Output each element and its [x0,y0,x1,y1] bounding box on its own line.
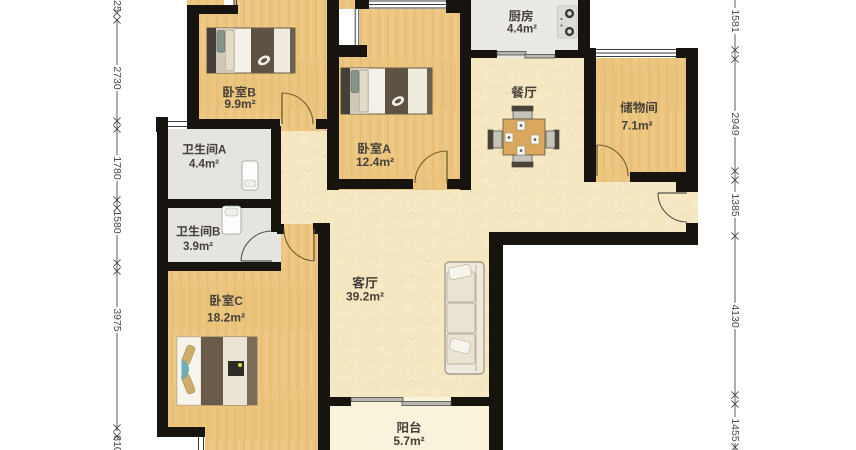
svg-text:4.4m²: 4.4m² [189,159,219,171]
svg-text:B: B [212,227,220,239]
svg-text:A: A [218,145,226,157]
svg-text:7.1m²: 7.1m² [621,119,652,133]
svg-text:1780: 1780 [111,156,123,180]
svg-text:2949: 2949 [729,112,741,136]
svg-text:C: C [234,294,243,308]
svg-text:2730: 2730 [111,66,123,90]
svg-text:12.4m²: 12.4m² [356,155,394,169]
svg-text:9.9m²: 9.9m² [224,97,255,111]
svg-text:4.4m²: 4.4m² [507,24,537,36]
svg-text:1385: 1385 [729,193,741,217]
svg-text:18.2m²: 18.2m² [207,311,245,325]
svg-text:4130: 4130 [729,304,741,328]
svg-text:1581: 1581 [729,9,741,33]
svg-text:5.7m²: 5.7m² [393,434,424,448]
svg-text:1580: 1580 [111,210,123,234]
svg-text:810: 810 [111,435,123,450]
svg-text:3975: 3975 [111,308,123,332]
svg-text:1455: 1455 [729,418,741,442]
svg-text:3.9m²: 3.9m² [183,241,213,253]
svg-text:39.2m²: 39.2m² [346,290,384,304]
svg-text:25: 25 [111,0,123,12]
svg-text:A: A [382,142,391,156]
